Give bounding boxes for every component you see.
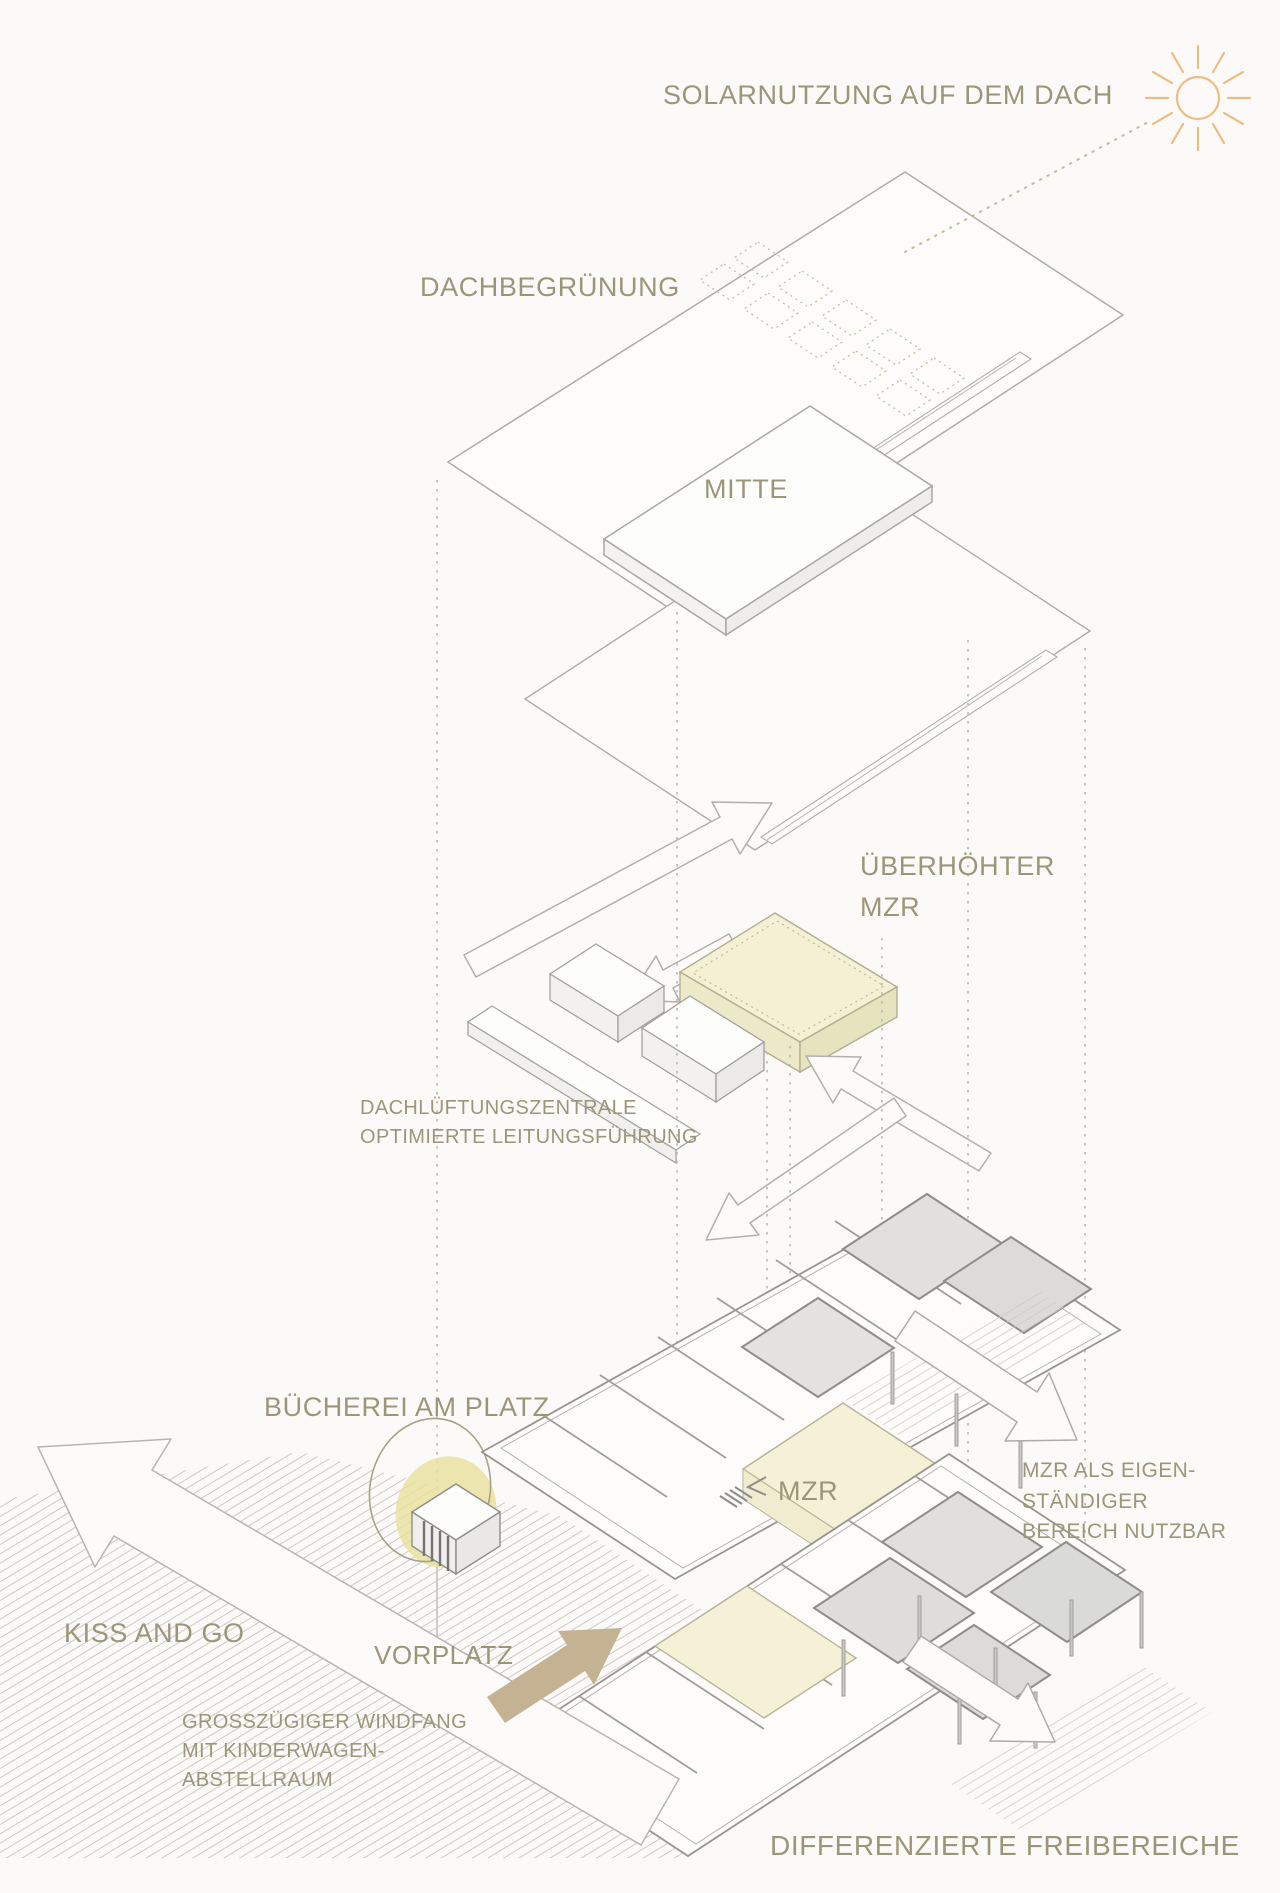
label-vent: DACHLÜFTUNGSZENTRALE OPTIMIERTE LEITUNGS… [360, 1094, 698, 1152]
label-vorplatz: VORPLATZ [374, 1640, 513, 1671]
label-roof-greening: DACHBEGRÜNUNG [420, 272, 680, 303]
label-mzr-note: MZR ALS EIGEN- STÄNDIGER BEREICH NUTZBAR [1022, 1456, 1226, 1548]
label-mitte: MITTE [704, 474, 788, 505]
label-windfang-line1: GROSSZÜGIGER WINDFANG [182, 1708, 467, 1737]
label-solar-roof: SOLARNUTZUNG AUF DEM DACH [663, 80, 1113, 111]
label-mzr-floor: MZR [778, 1476, 838, 1507]
sun-icon [1146, 46, 1250, 150]
label-mzr-high-line2: MZR [860, 887, 1055, 928]
label-mzr-note-line2: STÄNDIGER [1022, 1487, 1226, 1518]
label-mzr-high: ÜBERHÖHTER MZR [860, 846, 1055, 927]
label-windfang: GROSSZÜGIGER WINDFANG MIT KINDERWAGEN- A… [182, 1708, 467, 1796]
label-windfang-line2: MIT KINDERWAGEN- [182, 1737, 467, 1766]
label-mzr-note-line3: BEREICH NUTZBAR [1022, 1517, 1226, 1548]
label-vent-line1: DACHLÜFTUNGSZENTRALE [360, 1094, 698, 1123]
label-mzr-high-line1: ÜBERHÖHTER [860, 846, 1055, 887]
label-kiss-and-go: KISS AND GO [64, 1618, 245, 1649]
label-vent-line2: OPTIMIERTE LEITUNGSFÜHRUNG [360, 1123, 698, 1152]
label-open-spaces: DIFFERENZIERTE FREIBEREICHE [770, 1830, 1240, 1862]
diagram-page: SOLARNUTZUNG AUF DEM DACH DACHBEGRÜNUNG … [0, 0, 1280, 1893]
vent-arrow-out-icon [706, 1098, 906, 1240]
sun-leader-dotted-line [905, 120, 1152, 252]
label-windfang-line3: ABSTELLRAUM [182, 1766, 467, 1795]
label-mzr-note-line1: MZR ALS EIGEN- [1022, 1456, 1226, 1487]
label-library: BÜCHEREI AM PLATZ [264, 1392, 550, 1423]
